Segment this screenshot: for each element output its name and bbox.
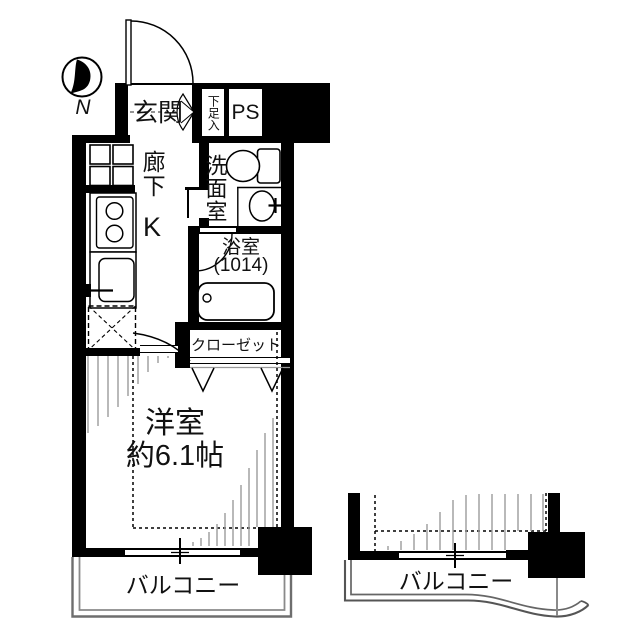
balcony-main-label: バルコニー bbox=[113, 571, 253, 599]
compass-north-label: N bbox=[67, 95, 99, 121]
western-room-label: 洋室 bbox=[110, 407, 240, 441]
neighbor-wall-strip bbox=[548, 493, 560, 532]
wall-kitchen-top bbox=[86, 135, 130, 143]
toilet-icon bbox=[227, 149, 281, 183]
washroom-label: 洗面室 bbox=[201, 147, 229, 229]
floor-plan: N 玄関 下足入 PS 廊下 K 洗面室 浴室 (1014) クローゼット 洋室… bbox=[0, 0, 640, 640]
balcony-window bbox=[125, 548, 240, 557]
neighbor-wall-bottom bbox=[360, 551, 399, 560]
wall-left bbox=[72, 135, 86, 556]
closet-front-line bbox=[190, 357, 290, 364]
pipe-space-label: PS bbox=[229, 93, 262, 133]
refrigerator-space-icon bbox=[89, 306, 136, 350]
bathroom-size-label: (1014) bbox=[203, 255, 279, 277]
neighbor-column-block bbox=[528, 532, 585, 578]
kitchen-sink-icon bbox=[84, 252, 136, 308]
wall-kitchen-separator bbox=[86, 185, 135, 193]
bathtub-icon bbox=[198, 283, 274, 320]
room-doorway bbox=[140, 345, 178, 353]
closet-label: クローゼット bbox=[190, 336, 282, 356]
compass-icon bbox=[63, 58, 102, 97]
balcony-neighbor-label: バルコニー bbox=[386, 567, 526, 595]
kitchen-label: K bbox=[137, 209, 167, 245]
shoe-storage-label: 下足入 bbox=[202, 90, 224, 136]
wall-kitchen-bottom bbox=[72, 348, 140, 356]
neighbor-wall-left bbox=[348, 493, 360, 560]
wall-bathroom-left bbox=[188, 226, 199, 330]
wall-right bbox=[281, 140, 294, 530]
neighbor-wall-window-end bbox=[506, 550, 528, 560]
kitchen-window-icon bbox=[90, 145, 133, 186]
entrance-label: 玄関 bbox=[128, 98, 188, 128]
corner-column-block bbox=[258, 527, 312, 575]
closet-folding-door-icon bbox=[190, 368, 290, 392]
stove-icon bbox=[90, 193, 136, 252]
washbasin-icon bbox=[237, 188, 283, 227]
western-room-size-label: 約6.1帖 bbox=[95, 439, 255, 473]
wall-room-bottom-left bbox=[72, 548, 125, 557]
washroom-door-leaf bbox=[187, 190, 189, 218]
wall-bathroom-bottom bbox=[175, 322, 294, 330]
corridor-label: 廊下 bbox=[139, 147, 165, 201]
neighbor-balcony-window bbox=[399, 551, 506, 560]
